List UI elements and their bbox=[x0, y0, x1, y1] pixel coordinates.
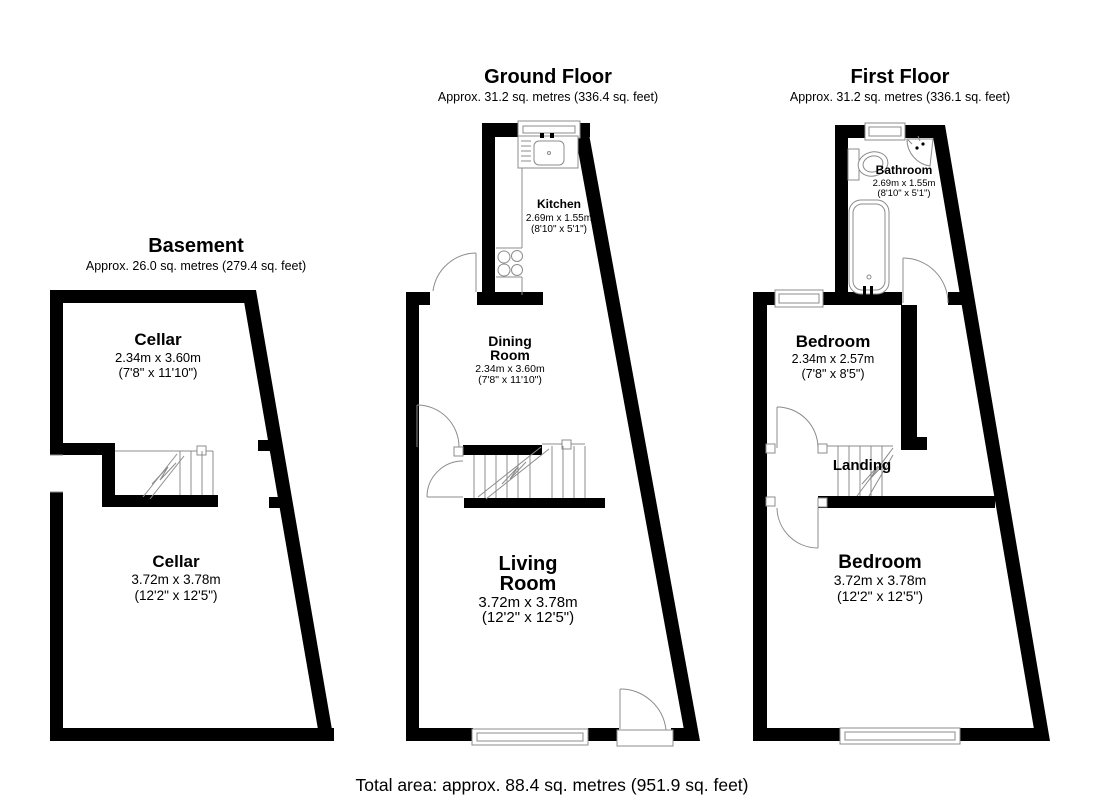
room-name: Room bbox=[500, 573, 557, 595]
first-floor-walls bbox=[753, 125, 1050, 741]
bedroom1-door bbox=[777, 407, 818, 448]
bathtub-inner bbox=[853, 204, 885, 290]
room-dims-ft: (12'2" x 12'5") bbox=[482, 609, 574, 626]
wall bbox=[588, 728, 619, 741]
wall bbox=[102, 495, 218, 507]
stair-break-symbol bbox=[502, 462, 526, 484]
basement-plan: Basement Approx. 26.0 sq. metres (279.4 … bbox=[50, 235, 334, 741]
basin-tap bbox=[915, 146, 918, 149]
bedroom2-window bbox=[840, 728, 960, 744]
hob bbox=[498, 251, 523, 277]
door-threshold bbox=[617, 730, 673, 746]
basement-area: Approx. 26.0 sq. metres (279.4 sq. feet) bbox=[86, 259, 306, 273]
door-arc bbox=[620, 689, 666, 730]
wall bbox=[464, 498, 605, 508]
tap bbox=[550, 133, 554, 138]
door-arc bbox=[777, 508, 818, 548]
wall bbox=[835, 125, 866, 138]
floorplan-canvas: Basement Approx. 26.0 sq. metres (279.4 … bbox=[0, 0, 1100, 800]
door-arc bbox=[417, 405, 459, 447]
door-arc bbox=[433, 253, 476, 291]
ground-floor-plan: Ground Floor Approx. 31.2 sq. metres (33… bbox=[406, 66, 700, 746]
room-name: Room bbox=[490, 347, 530, 363]
wall-stub bbox=[258, 440, 274, 451]
stair-newel bbox=[454, 447, 463, 456]
room-dims-m: 2.34m x 3.60m bbox=[115, 350, 201, 365]
wall bbox=[753, 728, 840, 741]
first-floor-area: Approx. 31.2 sq. metres (336.1 sq. feet) bbox=[790, 90, 1010, 104]
living-door bbox=[427, 461, 463, 497]
wall bbox=[477, 292, 543, 305]
tap bbox=[540, 133, 544, 138]
ground-floor-area: Approx. 31.2 sq. metres (336.4 sq. feet) bbox=[438, 90, 658, 104]
hob-burner bbox=[498, 264, 510, 276]
ground-floor-title: Ground Floor bbox=[484, 66, 612, 88]
junction-square bbox=[766, 444, 775, 453]
wall-stub bbox=[901, 437, 927, 450]
wall bbox=[406, 292, 419, 741]
wall bbox=[406, 728, 473, 741]
window-pane bbox=[477, 733, 583, 741]
living-room-window bbox=[472, 729, 588, 745]
floorplan-page: Basement Approx. 26.0 sq. metres (279.4 … bbox=[0, 0, 1100, 800]
hob-burner bbox=[498, 251, 510, 263]
first-floor-plan: First Floor Approx. 31.2 sq. metres (336… bbox=[753, 66, 1050, 744]
bathroom-window bbox=[865, 123, 905, 140]
room-dims-ft: (12'2" x 12'5") bbox=[134, 588, 217, 603]
wall bbox=[948, 292, 970, 305]
hob-burner bbox=[512, 251, 523, 262]
room-name: Bedroom bbox=[796, 332, 871, 351]
wall-diagonal bbox=[242, 290, 334, 741]
stair-newel bbox=[818, 498, 827, 507]
wall bbox=[671, 728, 693, 741]
first-floor-title: First Floor bbox=[851, 66, 950, 88]
room-dims-ft: (8'10" x 5'1") bbox=[531, 224, 587, 235]
door-arc bbox=[777, 407, 818, 448]
bathtub-tap bbox=[870, 286, 873, 295]
room-name: Landing bbox=[833, 457, 891, 474]
total-area-text: Total area: approx. 88.4 sq. metres (951… bbox=[356, 775, 749, 795]
wall bbox=[835, 125, 848, 305]
room-dims-m: 2.34m x 2.57m bbox=[792, 352, 875, 366]
wall-diagonal bbox=[931, 125, 1050, 741]
exit-door bbox=[617, 689, 673, 746]
room-name: Cellar bbox=[134, 330, 182, 349]
bedroom2-door bbox=[777, 508, 818, 548]
window-pane bbox=[845, 732, 955, 740]
toilet-cistern bbox=[848, 149, 859, 180]
window-pane bbox=[869, 127, 901, 136]
wall bbox=[50, 728, 334, 741]
junction-square bbox=[766, 497, 775, 506]
bathtub bbox=[849, 200, 889, 295]
wall bbox=[50, 492, 63, 741]
kitchen-counter bbox=[496, 168, 523, 295]
room-dims-m: 3.72m x 3.78m bbox=[834, 572, 927, 588]
corner-basin bbox=[907, 136, 933, 166]
basement-title: Basement bbox=[148, 235, 244, 257]
room-dims-ft: (7'8" x 11'10") bbox=[119, 365, 198, 380]
room-dims-ft: (12'2" x 12'5") bbox=[837, 588, 923, 604]
wall-stub bbox=[269, 497, 287, 508]
room-dims-m: 2.69m x 1.55m bbox=[526, 213, 592, 224]
wall bbox=[901, 305, 917, 450]
stair-newel bbox=[818, 444, 827, 453]
front-door bbox=[433, 253, 476, 292]
basin-tap bbox=[921, 142, 924, 145]
room-name: Bedroom bbox=[838, 552, 921, 573]
bathtub-tap bbox=[863, 286, 866, 295]
wall bbox=[482, 123, 518, 137]
stair-rail bbox=[150, 456, 184, 499]
door-arc bbox=[427, 461, 463, 497]
door-arc bbox=[903, 258, 948, 303]
wall bbox=[958, 728, 1036, 741]
bedroom1-window bbox=[775, 290, 823, 307]
wall bbox=[50, 290, 63, 455]
room-name: Cellar bbox=[152, 552, 200, 571]
wall bbox=[50, 290, 256, 303]
room-dims-m: 3.72m x 3.78m bbox=[131, 572, 220, 587]
wall bbox=[482, 123, 495, 305]
wall bbox=[463, 445, 542, 455]
window-pane bbox=[523, 126, 575, 133]
dining-door bbox=[417, 405, 459, 447]
room-dims-ft: (7'8" x 11'10") bbox=[478, 374, 542, 386]
basement-staircase bbox=[115, 446, 213, 499]
room-name: Living bbox=[499, 553, 558, 575]
room-name: Bathroom bbox=[876, 163, 933, 177]
hob-burner bbox=[512, 265, 523, 276]
basement-cellar-opening bbox=[50, 455, 63, 492]
kitchen-window bbox=[518, 121, 580, 138]
basement-room-labels: Cellar 2.34m x 3.60m (7'8" x 11'10") Cel… bbox=[115, 330, 221, 603]
bathroom-door bbox=[903, 258, 948, 303]
room-dims-ft: (7'8" x 8'5") bbox=[802, 367, 865, 381]
wall bbox=[818, 496, 995, 508]
kitchen-sink bbox=[518, 133, 578, 168]
sink-bowl bbox=[534, 141, 564, 165]
wall bbox=[753, 292, 767, 741]
room-dims-ft: (8'10" x 5'1") bbox=[877, 188, 930, 199]
room-name: Kitchen bbox=[537, 197, 581, 211]
window-pane bbox=[779, 294, 819, 303]
